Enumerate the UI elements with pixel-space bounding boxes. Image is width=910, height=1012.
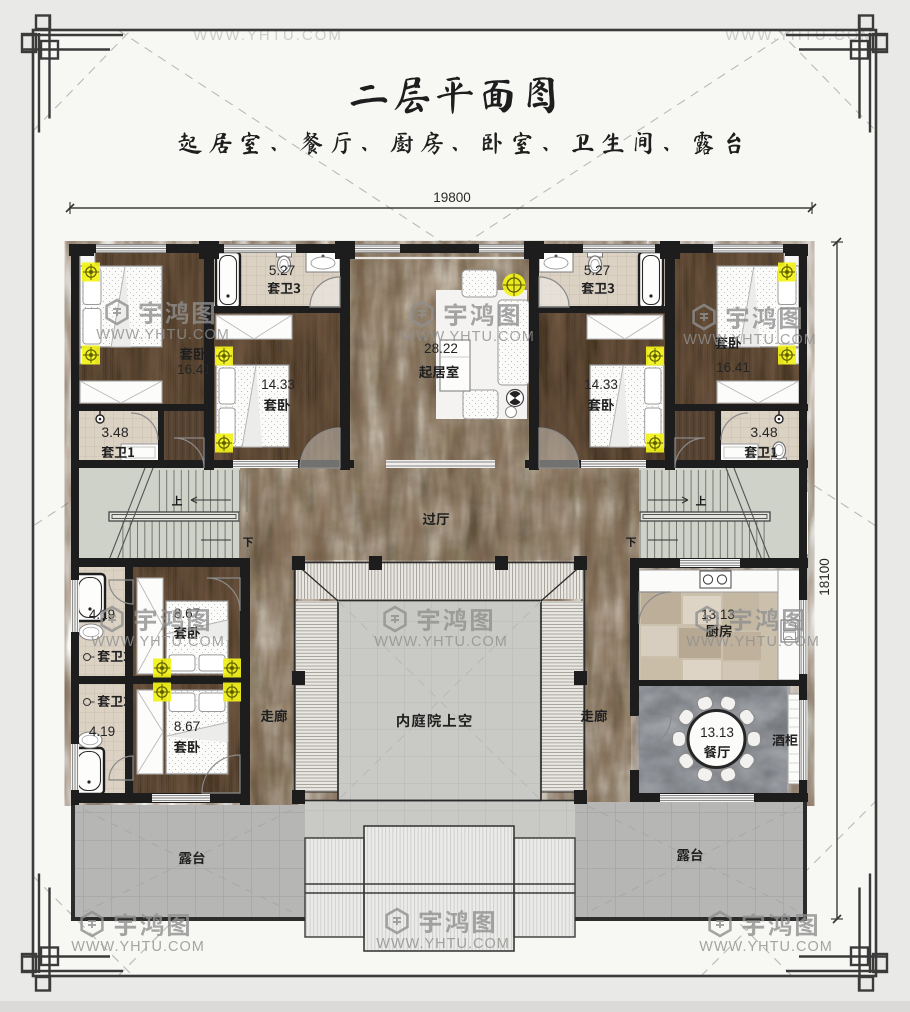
svg-text:WWW.YHTU.COM: WWW.YHTU.COM xyxy=(376,936,510,952)
svg-text:WWW.YHTU.COM: WWW.YHTU.COM xyxy=(71,939,205,955)
svg-text:14.33: 14.33 xyxy=(584,377,618,392)
svg-text:14.33: 14.33 xyxy=(261,377,295,392)
svg-text:3.48: 3.48 xyxy=(101,424,128,440)
svg-text:WWW.YHTU.COM: WWW.YHTU.COM xyxy=(686,634,820,650)
svg-text:19800: 19800 xyxy=(433,190,471,205)
svg-text:WWW.YHTU.COM: WWW.YHTU.COM xyxy=(91,634,225,650)
svg-text:5.27: 5.27 xyxy=(269,263,295,278)
svg-text:8.67: 8.67 xyxy=(174,719,200,734)
svg-text:4.19: 4.19 xyxy=(89,724,115,739)
svg-text:18100: 18100 xyxy=(817,558,832,596)
svg-text:WWW.YHTU.COM: WWW.YHTU.COM xyxy=(96,327,230,343)
svg-text:WWW.YHTU.COM: WWW.YHTU.COM xyxy=(699,939,833,955)
svg-text:3.48: 3.48 xyxy=(750,424,777,440)
svg-text:16.41: 16.41 xyxy=(177,362,211,377)
svg-text:WWW.YHTU.COM: WWW.YHTU.COM xyxy=(374,634,508,650)
svg-text:16.41: 16.41 xyxy=(716,360,750,375)
svg-text:WWW.YHTU.COM: WWW.YHTU.COM xyxy=(683,332,817,348)
svg-text:5.27: 5.27 xyxy=(584,263,610,278)
svg-text:13.13: 13.13 xyxy=(700,725,734,740)
svg-text:WWW.YHTU.COM: WWW.YHTU.COM xyxy=(401,329,535,345)
